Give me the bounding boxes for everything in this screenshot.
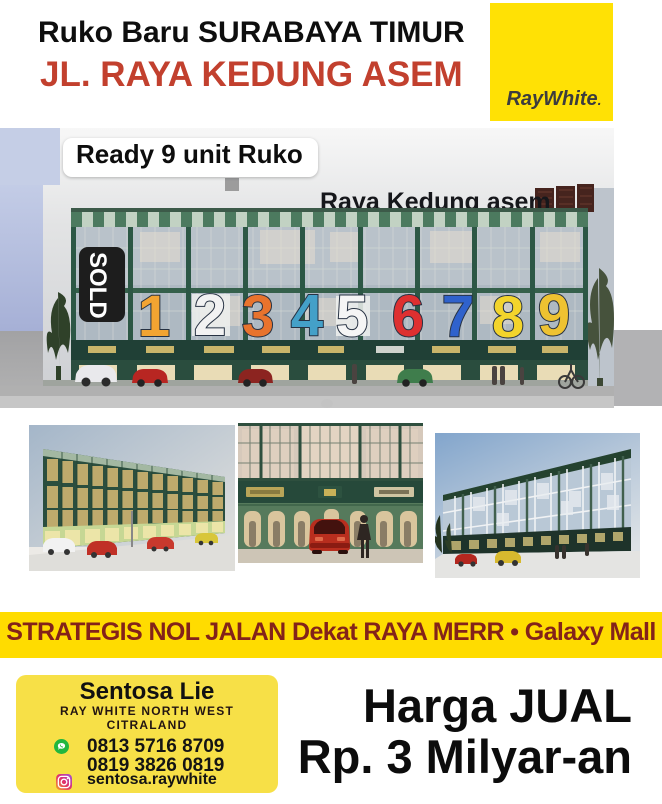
svg-text:7: 7 xyxy=(442,284,474,349)
svg-text:4: 4 xyxy=(291,283,323,348)
svg-text:1: 1 xyxy=(138,284,170,349)
svg-text:8: 8 xyxy=(492,285,524,350)
svg-text:5: 5 xyxy=(336,284,368,349)
svg-text:SOLD: SOLD xyxy=(84,252,111,319)
svg-text:3: 3 xyxy=(242,284,274,349)
svg-text:6: 6 xyxy=(392,284,424,349)
svg-text:2: 2 xyxy=(194,283,226,348)
svg-text:9: 9 xyxy=(538,283,570,348)
